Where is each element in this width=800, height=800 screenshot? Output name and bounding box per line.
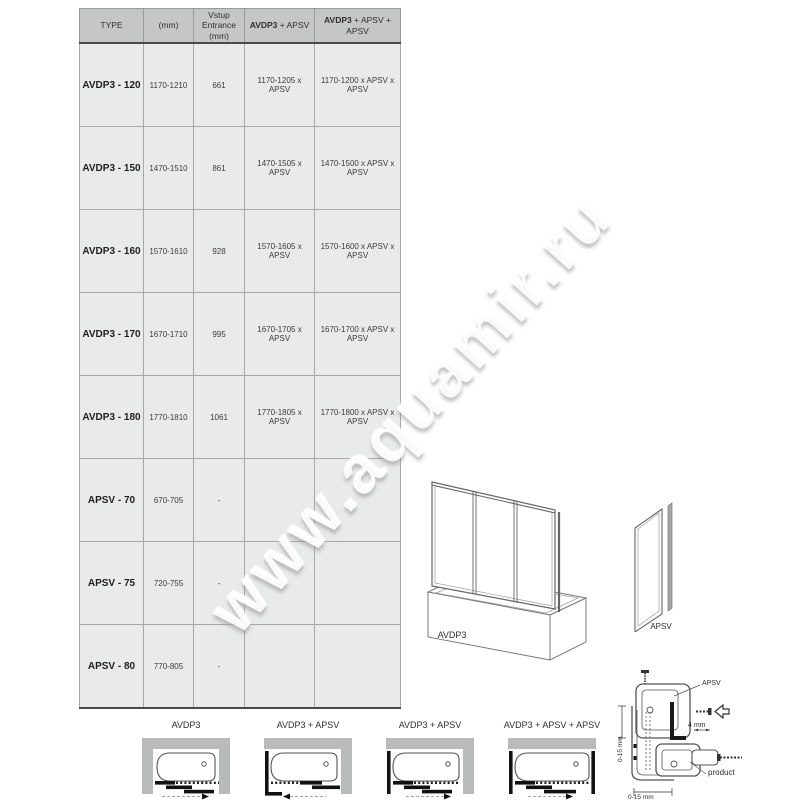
screw-icon <box>717 754 742 761</box>
cell-type: APSV - 75 <box>80 542 144 625</box>
cell-type: AVDP3 - 150 <box>80 127 144 210</box>
cell-type: AVDP3 - 120 <box>80 43 144 127</box>
cell-combo2: 1670-1700 x APSV x APSV <box>315 293 401 376</box>
slide-direction-arrow-icon <box>283 794 326 800</box>
apsv-panel-drawing <box>622 472 702 632</box>
detail-side-gap-label: 0-15 mm <box>617 736 624 762</box>
cell-combo1: 1670-1705 x APSV <box>245 293 315 376</box>
cell-combo2 <box>315 625 401 709</box>
layout-diagram-avdp3-apsv-right <box>384 736 476 800</box>
slide-direction-arrow-icon <box>406 794 451 800</box>
layout-3-label: AVDP3 + APSV <box>360 720 500 730</box>
cell-combo1: 1570-1605 x APSV <box>245 210 315 293</box>
cell-combo2: 1770-1800 x APSV x APSV <box>315 376 401 459</box>
cell-mm: 1670-1710 <box>144 293 194 376</box>
table-header-row: TYPE (mm) Vstup Entrance (mm) AVDP3 + AP… <box>80 9 401 44</box>
cell-mm: 670-705 <box>144 459 194 542</box>
cell-combo1 <box>245 625 315 709</box>
cell-combo2 <box>315 459 401 542</box>
cell-combo2 <box>315 542 401 625</box>
table-row: AVDP3 - 180 1770-1810 1061 1770-1805 x A… <box>80 376 401 459</box>
table-row: AVDP3 - 160 1570-1610 928 1570-1605 x AP… <box>80 210 401 293</box>
cell-entrance: 1061 <box>194 376 245 459</box>
cell-mm: 720-755 <box>144 542 194 625</box>
screw-arrow-icon <box>696 705 729 718</box>
cell-entrance: 928 <box>194 210 245 293</box>
cell-type: APSV - 80 <box>80 625 144 709</box>
detail-bottom-gap-label: 0-15 mm <box>628 794 654 800</box>
layout-4-label: AVDP3 + APSV + APSV <box>482 720 622 730</box>
cell-entrance: - <box>194 625 245 709</box>
table-row: APSV - 70 670-705 - <box>80 459 401 542</box>
detail-4mm-label: 4 mm <box>688 722 706 729</box>
layout-diagram-avdp3-apsv-apsv <box>506 736 598 800</box>
col-header-combo1: AVDP3 + APSV <box>245 9 315 44</box>
cell-combo1: 1170-1205 x APSV <box>245 43 315 127</box>
cell-combo1 <box>245 542 315 625</box>
cell-mm: 1770-1810 <box>144 376 194 459</box>
cell-type: APSV - 70 <box>80 459 144 542</box>
cell-combo1 <box>245 459 315 542</box>
table-row: APSV - 75 720-755 - <box>80 542 401 625</box>
slide-direction-arrow-icon <box>528 794 573 800</box>
cell-type: AVDP3 - 180 <box>80 376 144 459</box>
cell-combo2: 1170-1200 x APSV x APSV <box>315 43 401 127</box>
avdp3-isometric-drawing <box>402 462 628 662</box>
apsv-drawing-label: APSV <box>646 622 676 631</box>
slide-direction-arrow-icon <box>162 794 209 800</box>
cell-entrance: 661 <box>194 43 245 127</box>
layout-diagram-avdp3 <box>140 736 232 800</box>
cell-mm: 1170-1210 <box>144 43 194 127</box>
spec-table: TYPE (mm) Vstup Entrance (mm) AVDP3 + AP… <box>79 8 401 709</box>
table-row: AVDP3 - 170 1670-1710 995 1670-1705 x AP… <box>80 293 401 376</box>
cell-entrance: - <box>194 459 245 542</box>
detail-product-label: product <box>708 768 735 777</box>
detail-apsv-label: APSV <box>702 680 721 687</box>
cell-entrance: - <box>194 542 245 625</box>
cell-mm: 770-805 <box>144 625 194 709</box>
cell-combo1: 1470-1505 x APSV <box>245 127 315 210</box>
combo1-bold: AVDP3 <box>250 20 278 30</box>
combo2-bold: AVDP3 <box>324 15 352 25</box>
combo1-rest: + APSV <box>277 20 309 30</box>
layout-1-label: AVDP3 <box>116 720 256 730</box>
cell-mm: 1570-1610 <box>144 210 194 293</box>
cell-entrance: 995 <box>194 293 245 376</box>
screw-icon <box>641 670 649 684</box>
combo2-rest: + APSV + APSV <box>346 15 391 36</box>
cell-combo2: 1470-1500 x APSV x APSV <box>315 127 401 210</box>
table-row: APSV - 80 770-805 - <box>80 625 401 709</box>
cell-combo2: 1570-1600 x APSV x APSV <box>315 210 401 293</box>
cell-mm: 1470-1510 <box>144 127 194 210</box>
col-header-entrance: Vstup Entrance (mm) <box>194 9 245 44</box>
avdp3-drawing-label: AVDP3 <box>437 630 467 640</box>
table-row: AVDP3 - 120 1170-1210 661 1170-1205 x AP… <box>80 43 401 127</box>
table-row: AVDP3 - 150 1470-1510 861 1470-1505 x AP… <box>80 127 401 210</box>
cell-type: AVDP3 - 170 <box>80 293 144 376</box>
layout-diagram-avdp3-apsv-left <box>262 736 354 800</box>
col-header-type: TYPE <box>80 9 144 44</box>
cell-combo1: 1770-1805 x APSV <box>245 376 315 459</box>
cell-type: AVDP3 - 160 <box>80 210 144 293</box>
col-header-combo2: AVDP3 + APSV + APSV <box>315 9 401 44</box>
cell-entrance: 861 <box>194 127 245 210</box>
layout-2-label: AVDP3 + APSV <box>238 720 378 730</box>
page: TYPE (mm) Vstup Entrance (mm) AVDP3 + AP… <box>0 0 800 800</box>
col-header-mm: (mm) <box>144 9 194 44</box>
